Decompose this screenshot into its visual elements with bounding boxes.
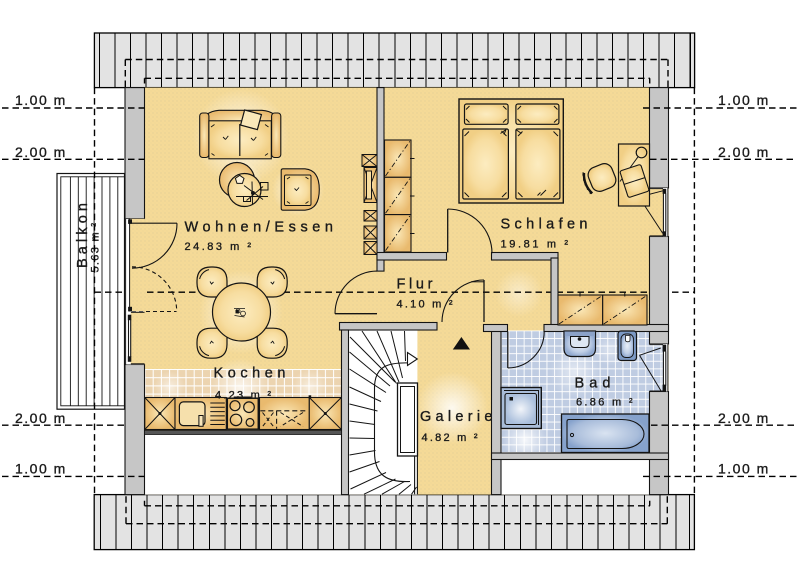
- svg-text:2.00 m: 2.00 m: [718, 410, 770, 426]
- svg-text:2.00 m: 2.00 m: [718, 144, 770, 160]
- svg-text:2.00 m: 2.00 m: [15, 144, 67, 160]
- svg-text:19.81 m ²: 19.81 m ²: [501, 239, 569, 251]
- svg-text:1.00 m: 1.00 m: [15, 461, 67, 477]
- svg-text:2.00 m: 2.00 m: [15, 410, 67, 426]
- svg-text:24.83 m ²: 24.83 m ²: [185, 241, 252, 253]
- svg-text:Bad: Bad: [575, 376, 611, 392]
- svg-text:5.63 m ²: 5.63 m ²: [90, 223, 102, 273]
- svg-text:1.00 m: 1.00 m: [718, 92, 770, 108]
- svg-text:1.00 m: 1.00 m: [15, 92, 67, 108]
- svg-text:1.00 m: 1.00 m: [718, 461, 770, 477]
